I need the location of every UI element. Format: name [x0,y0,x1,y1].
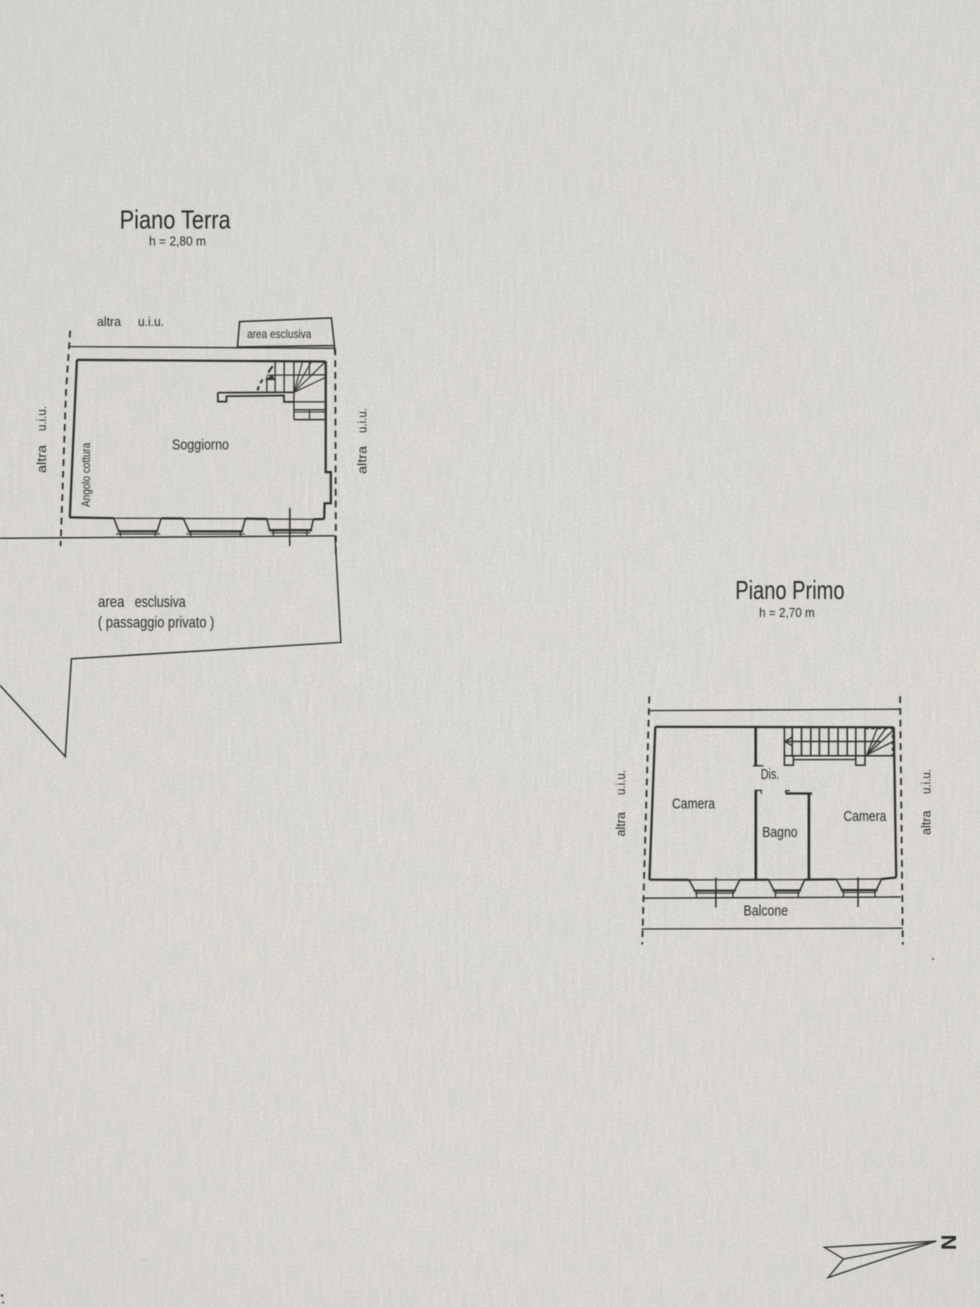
svg-text:Soggiorno: Soggiorno [172,437,229,454]
svg-text:altra: altra [97,314,122,329]
svg-text:altra: altra [919,810,934,835]
svg-text:esclusiva: esclusiva [135,594,186,611]
svg-text:Dis.: Dis. [761,766,780,783]
svg-text:h = 2,80 m: h = 2,80 m [149,234,206,249]
svg-text:h = 2,70 m: h = 2,70 m [759,605,815,620]
svg-text:Camera: Camera [672,796,716,813]
svg-text:u.i.u.: u.i.u. [34,406,49,431]
svg-text:u.i.u.: u.i.u. [919,769,934,794]
svg-text:u.i.u.: u.i.u. [138,314,164,329]
svg-text:Balcone: Balcone [744,903,789,920]
svg-text:N: N [937,1235,961,1251]
svg-text:altra: altra [613,811,628,836]
svg-text:( passaggio privato ): ( passaggio privato ) [98,615,214,632]
svg-text:Piano Terra: Piano Terra [120,205,231,235]
svg-text:Piano Primo: Piano Primo [735,575,844,605]
svg-text:area esclusiva: area esclusiva [247,327,312,341]
svg-text:Camera: Camera [844,808,887,825]
svg-text:Angolo cottura: Angolo cottura [79,442,93,507]
svg-text:altra: altra [355,445,370,474]
svg-text:u.i.u.: u.i.u. [355,408,370,433]
svg-text:u.i.u.: u.i.u. [613,770,628,795]
svg-text:Bagno: Bagno [762,824,797,841]
svg-text:area: area [98,594,125,611]
svg-text:altra: altra [34,444,49,473]
